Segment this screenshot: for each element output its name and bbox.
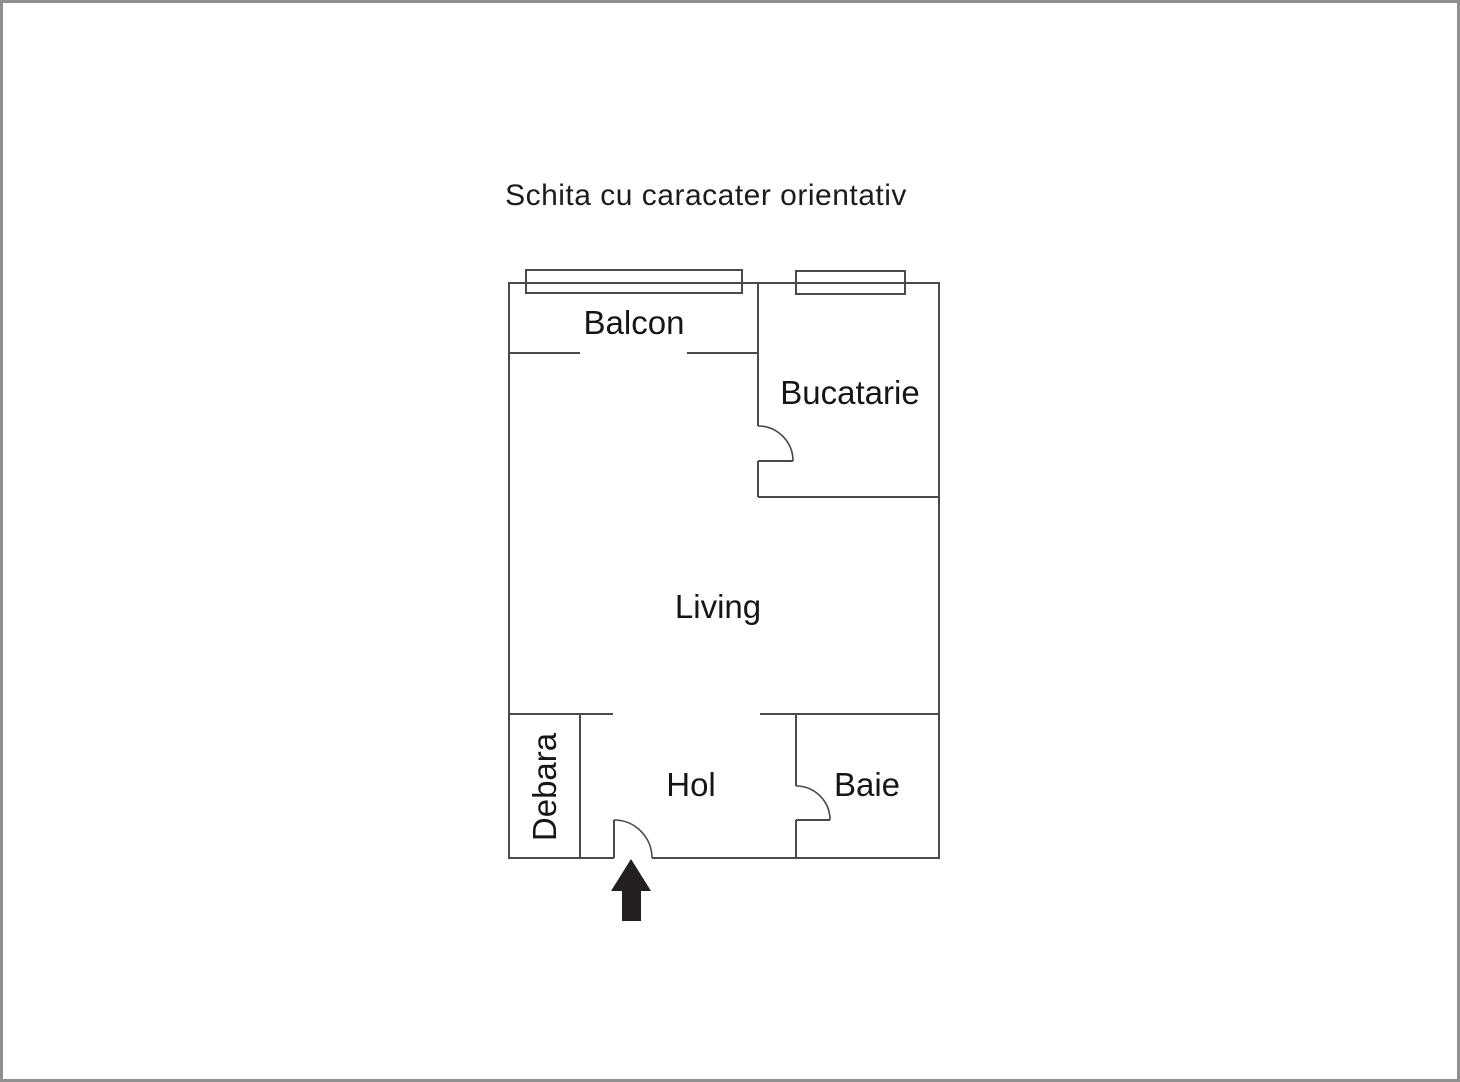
room-label-living: Living [675, 588, 761, 626]
baie-door-arc [796, 786, 830, 820]
entrance-door-arc [614, 820, 652, 858]
bucatarie-door-arc [758, 426, 793, 461]
room-label-hol: Hol [666, 766, 716, 804]
floor-plan-drawing [3, 3, 1460, 1082]
entrance-arrow-icon [611, 859, 651, 921]
room-label-balcon: Balcon [584, 304, 685, 342]
room-label-baie: Baie [834, 766, 900, 804]
room-label-bucatarie: Bucatarie [780, 374, 919, 412]
room-label-debara: Debara [526, 733, 564, 841]
floor-plan-canvas: Schita cu caracater orientativ Balc [0, 0, 1460, 1082]
balcon-window [526, 270, 742, 293]
